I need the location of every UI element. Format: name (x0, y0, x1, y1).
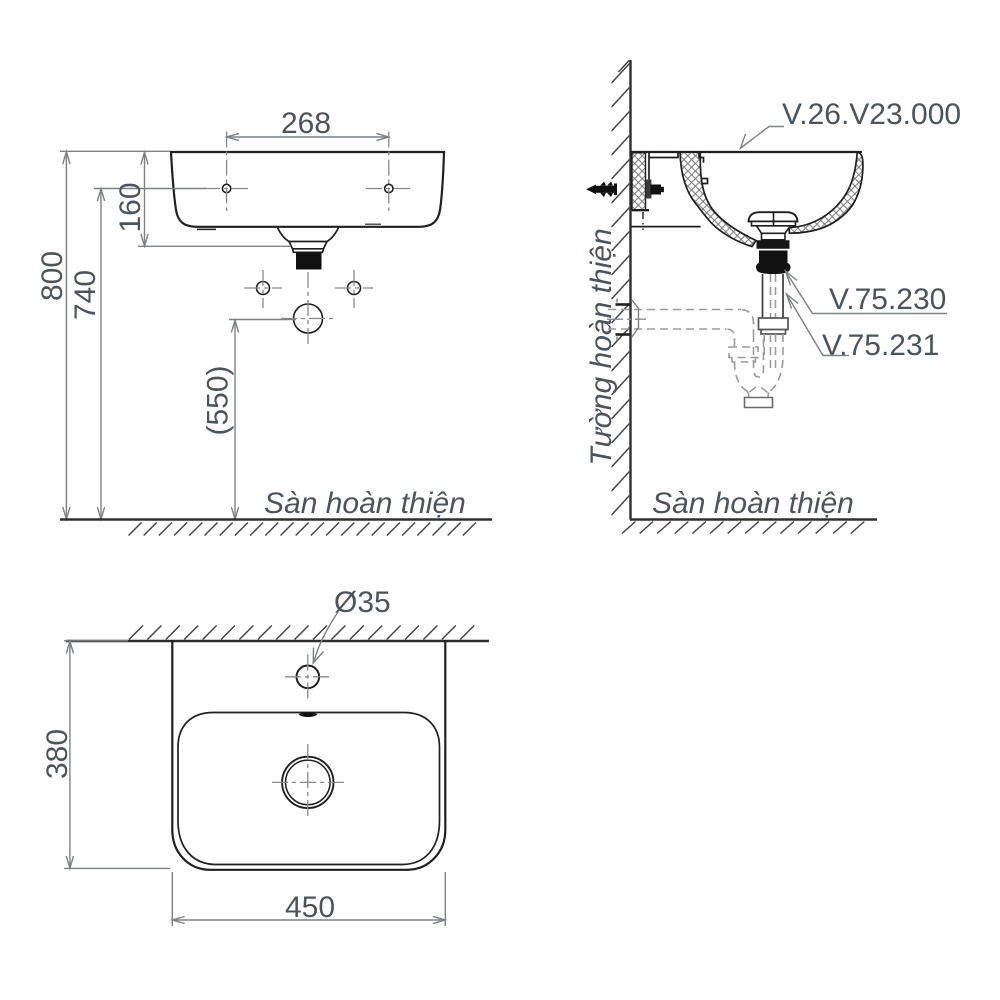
svg-text:V.75.231: V.75.231 (822, 329, 939, 362)
svg-text:740: 740 (69, 270, 102, 320)
svg-text:Sàn hoàn thiện: Sàn hoàn thiện (652, 487, 854, 520)
svg-text:Tường hoàn thiện: Tường hoàn thiện (585, 228, 618, 465)
svg-text:Ø35: Ø35 (334, 586, 391, 619)
svg-text:V.26.V23.000: V.26.V23.000 (782, 98, 961, 131)
svg-text:(550): (550) (202, 365, 235, 435)
svg-text:Sàn hoàn thiện: Sàn hoàn thiện (264, 487, 466, 520)
svg-text:450: 450 (285, 891, 335, 924)
svg-text:380: 380 (41, 729, 74, 779)
svg-text:V.75.230: V.75.230 (829, 283, 946, 316)
svg-text:160: 160 (114, 182, 147, 232)
svg-text:800: 800 (36, 251, 69, 301)
svg-text:268: 268 (281, 107, 331, 140)
